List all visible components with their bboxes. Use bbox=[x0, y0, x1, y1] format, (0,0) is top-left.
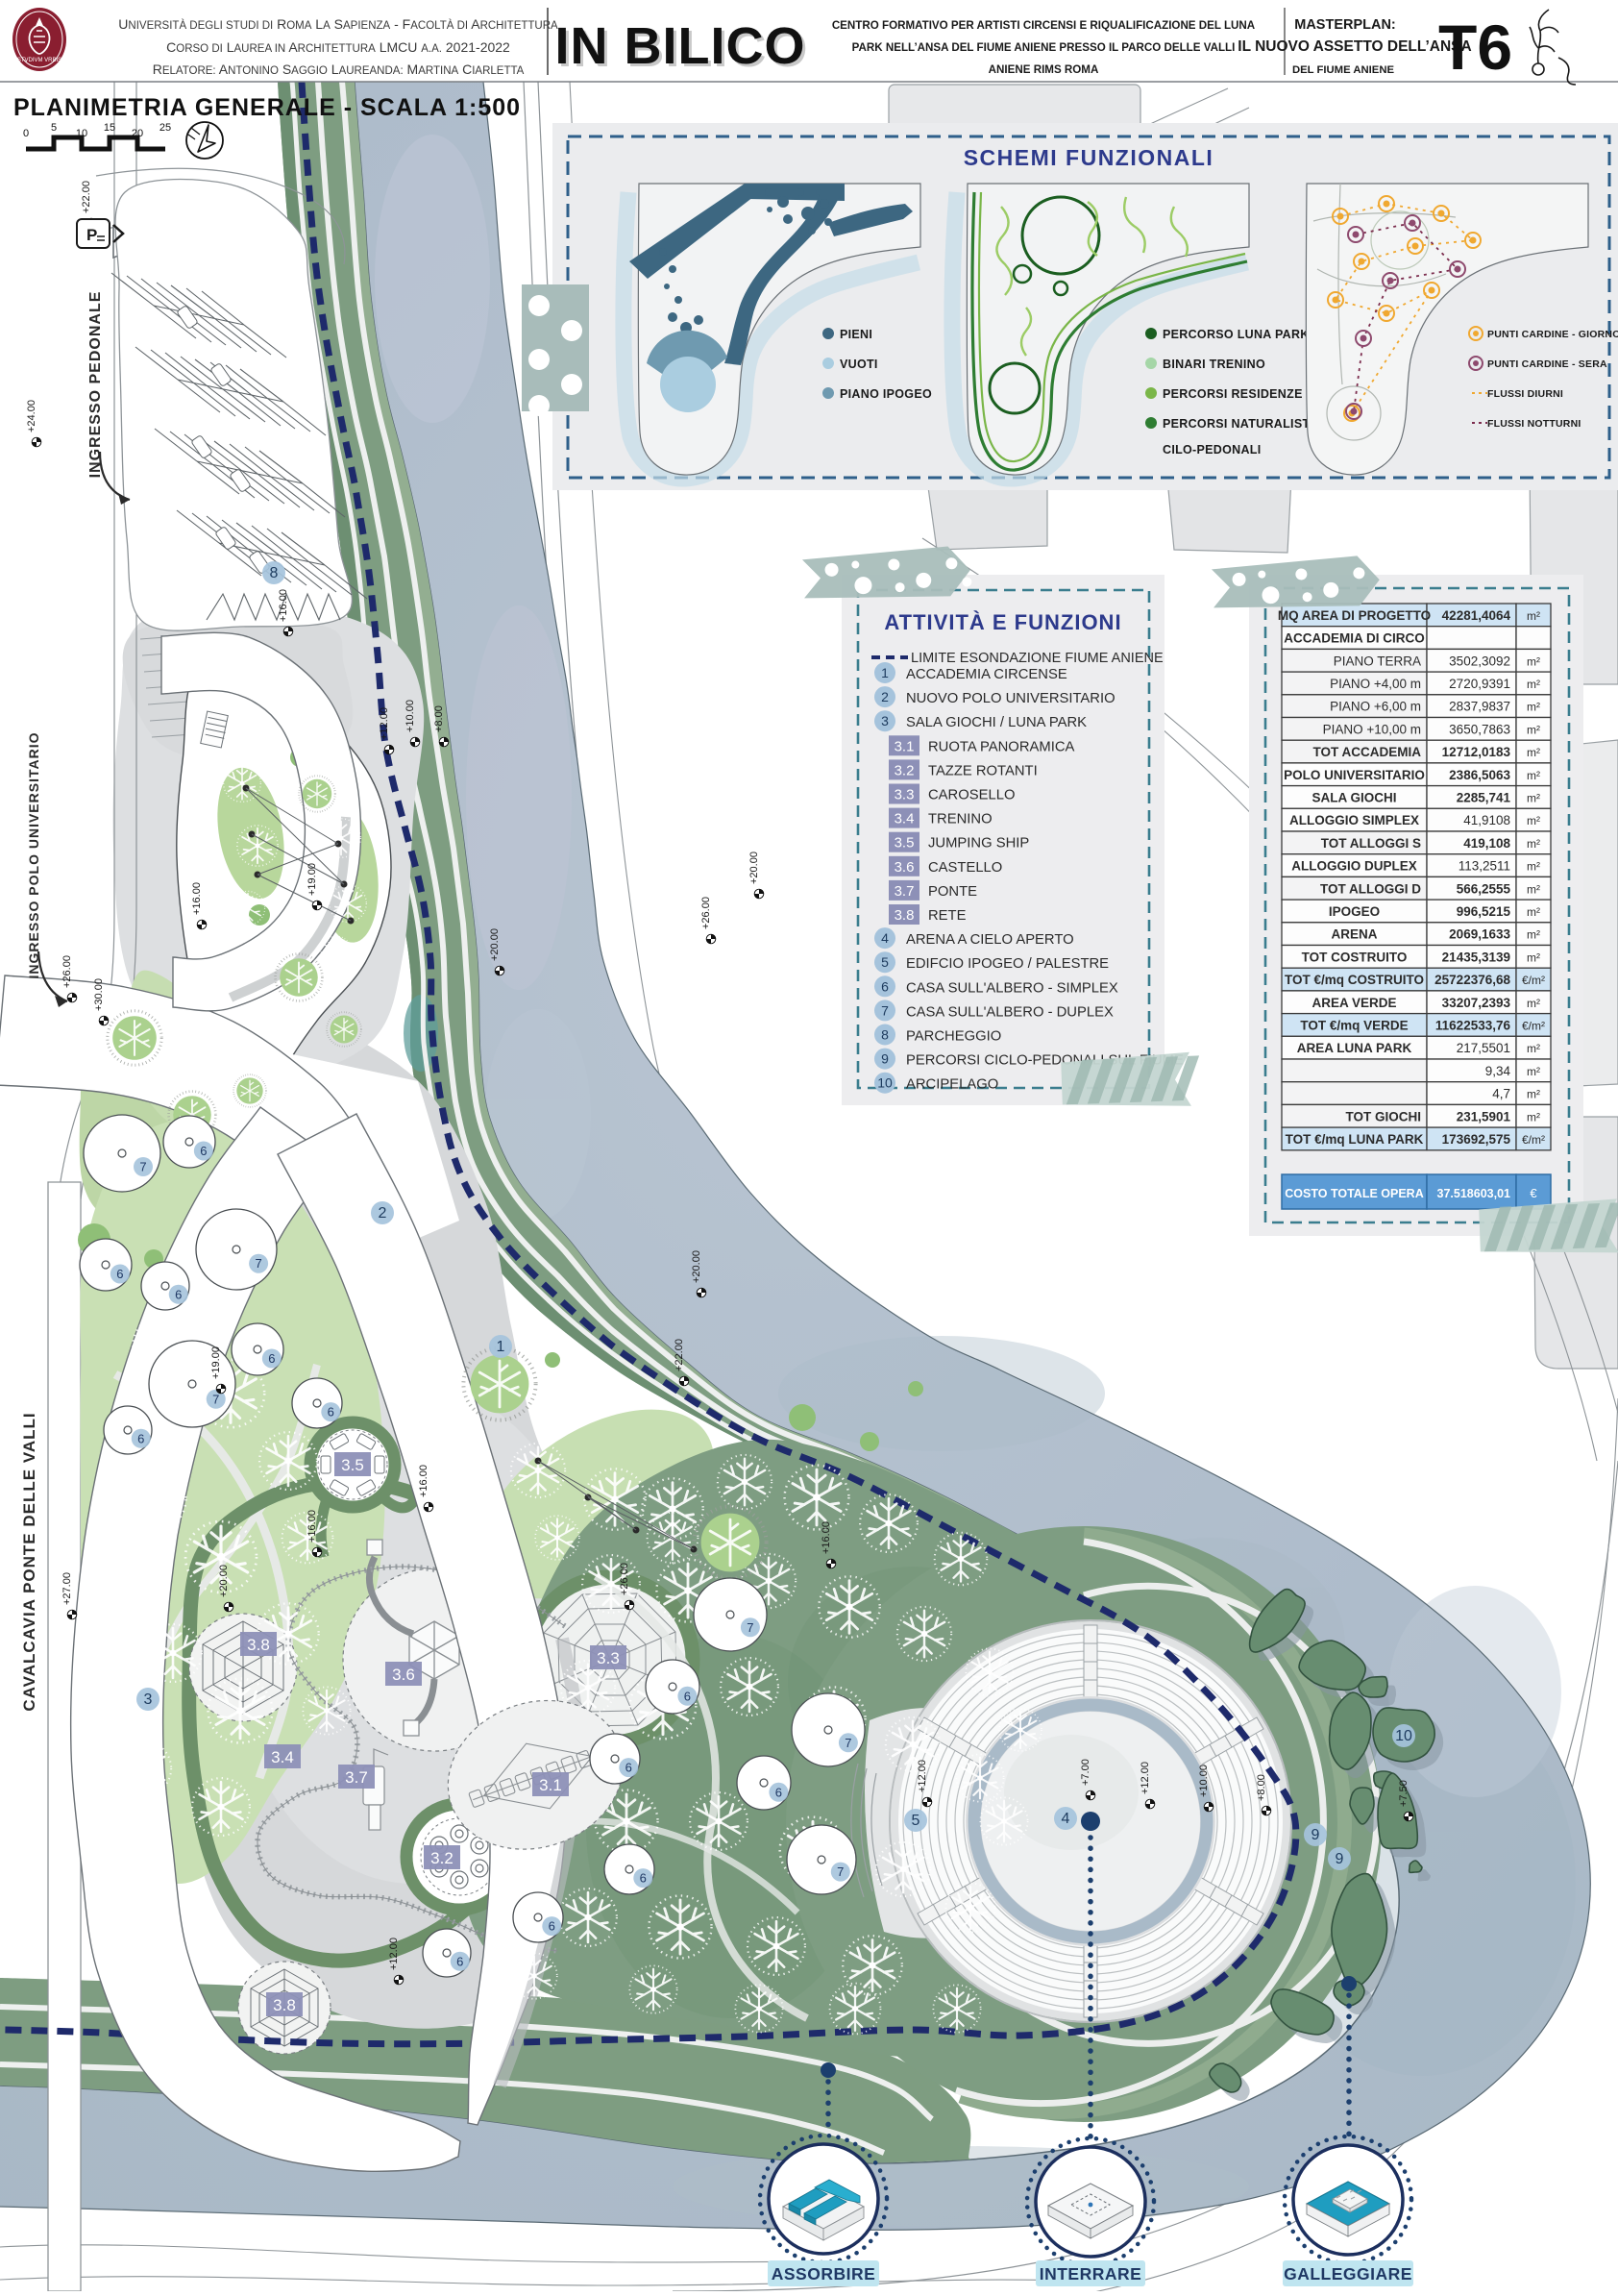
svg-text:+19.00: +19.00 bbox=[306, 863, 318, 896]
svg-text:PERCORSI RESIDENZE: PERCORSI RESIDENZE bbox=[1163, 387, 1303, 401]
svg-text:ALLOGGIO SIMPLEX: ALLOGGIO SIMPLEX bbox=[1289, 813, 1419, 827]
svg-text:5: 5 bbox=[912, 1813, 920, 1829]
svg-text:9: 9 bbox=[1336, 1851, 1344, 1867]
svg-text:6: 6 bbox=[775, 1785, 782, 1799]
svg-text:€/m²: €/m² bbox=[1522, 1020, 1545, 1033]
svg-text:RETE: RETE bbox=[928, 908, 967, 924]
svg-text:ACCADEMIA CIRCENSE: ACCADEMIA CIRCENSE bbox=[906, 667, 1067, 682]
svg-text:MASTERPLAN:: MASTERPLAN: bbox=[1294, 17, 1396, 33]
svg-text:NUOVO POLO UNIVERSITARIO: NUOVO POLO UNIVERSITARIO bbox=[906, 691, 1115, 706]
svg-text:CASA SULL'ALBERO - SIMPLEX: CASA SULL'ALBERO - SIMPLEX bbox=[906, 980, 1118, 996]
svg-text:4: 4 bbox=[881, 930, 889, 946]
svg-text:+7.50: +7.50 bbox=[1398, 1780, 1410, 1807]
svg-text:37.518603,01: 37.518603,01 bbox=[1437, 1187, 1511, 1200]
svg-text:3.7: 3.7 bbox=[895, 883, 915, 900]
svg-text:6: 6 bbox=[116, 1267, 123, 1281]
svg-text:+12.00: +12.00 bbox=[388, 1938, 400, 1970]
svg-text:7: 7 bbox=[881, 1002, 889, 1018]
svg-text:3.3: 3.3 bbox=[597, 1649, 620, 1667]
svg-text:3.8: 3.8 bbox=[895, 907, 915, 924]
svg-text:POLO UNIVERSITARIO: POLO UNIVERSITARIO bbox=[1284, 768, 1425, 782]
svg-text:12712,0183: 12712,0183 bbox=[1442, 745, 1511, 759]
svg-text:m²: m² bbox=[1527, 928, 1540, 942]
svg-text:PIANO +10,00 m: PIANO +10,00 m bbox=[1323, 722, 1421, 736]
svg-text:INTERRARE: INTERRARE bbox=[1040, 2264, 1142, 2284]
svg-text:STVDIVM VRBIS: STVDIVM VRBIS bbox=[17, 58, 61, 63]
svg-text:6: 6 bbox=[200, 1144, 207, 1158]
svg-text:PERCORSO LUNA PARK: PERCORSO LUNA PARK bbox=[1163, 328, 1310, 341]
svg-text:PARCHEGGIO: PARCHEGGIO bbox=[906, 1029, 1001, 1045]
svg-text:+30.00: +30.00 bbox=[93, 978, 105, 1011]
svg-text:ACCADEMIA DI CIRCO: ACCADEMIA DI CIRCO bbox=[1284, 631, 1425, 646]
svg-text:6: 6 bbox=[625, 1761, 632, 1775]
svg-text:m²: m² bbox=[1527, 950, 1540, 964]
svg-text:PARK NELL’ANSA DEL FIUME ANIEN: PARK NELL’ANSA DEL FIUME ANIENE PRESSO I… bbox=[852, 41, 1236, 54]
svg-text:SALA GIOCHI: SALA GIOCHI bbox=[1312, 791, 1396, 805]
svg-text:1: 1 bbox=[497, 1339, 505, 1355]
svg-text:+20.00: +20.00 bbox=[218, 1565, 230, 1597]
svg-text:VUOTI: VUOTI bbox=[840, 358, 878, 371]
svg-text:10: 10 bbox=[76, 128, 87, 139]
svg-text:PERCORSI NATURALISTICI: PERCORSI NATURALISTICI bbox=[1163, 417, 1326, 431]
svg-text:m²: m² bbox=[1527, 997, 1540, 1010]
svg-text:8: 8 bbox=[270, 565, 279, 581]
svg-text:9: 9 bbox=[1312, 1827, 1320, 1843]
svg-text:COSTO TOTALE OPERA: COSTO TOTALE OPERA bbox=[1285, 1187, 1423, 1200]
svg-text:+22.00: +22.00 bbox=[674, 1339, 685, 1371]
svg-text:m²: m² bbox=[1527, 1065, 1540, 1078]
svg-text:IN BILICO: IN BILICO bbox=[555, 17, 806, 75]
svg-text:2069,1633: 2069,1633 bbox=[1449, 927, 1510, 942]
svg-text:ARENA A CIELO APERTO: ARENA A CIELO APERTO bbox=[906, 932, 1074, 948]
svg-text:AREA LUNA PARK: AREA LUNA PARK bbox=[1297, 1041, 1412, 1055]
svg-text:RUOTA PANORAMICA: RUOTA PANORAMICA bbox=[928, 739, 1074, 754]
svg-text:PIANO +6,00 m: PIANO +6,00 m bbox=[1330, 700, 1421, 714]
svg-text:DEL FIUME ANIENE: DEL FIUME ANIENE bbox=[1292, 64, 1395, 76]
svg-text:15: 15 bbox=[104, 122, 115, 134]
svg-text:996,5215: 996,5215 bbox=[1457, 904, 1511, 919]
svg-text:3.8: 3.8 bbox=[273, 1996, 296, 2014]
svg-text:6: 6 bbox=[640, 1871, 647, 1886]
svg-text:IPOGEO: IPOGEO bbox=[1329, 904, 1380, 919]
svg-text:m²: m² bbox=[1527, 746, 1540, 759]
svg-text:7: 7 bbox=[837, 1864, 844, 1879]
svg-text:m²: m² bbox=[1527, 1110, 1540, 1123]
svg-text:3.3: 3.3 bbox=[895, 787, 915, 803]
svg-text:3.4: 3.4 bbox=[271, 1748, 294, 1766]
svg-text:3.7: 3.7 bbox=[345, 1768, 368, 1787]
svg-text:CAVALCAVIA PONTE DELLE VALLI: CAVALCAVIA PONTE DELLE VALLI bbox=[20, 1412, 38, 1711]
svg-text:PIANO IPOGEO: PIANO IPOGEO bbox=[840, 387, 932, 401]
svg-text:IL NUOVO ASSETTO DELL’ANSA: IL NUOVO ASSETTO DELL’ANSA bbox=[1238, 38, 1471, 55]
svg-text:+26.00: +26.00 bbox=[619, 1563, 630, 1595]
svg-text:+26.00: +26.00 bbox=[61, 955, 73, 988]
svg-text:3.4: 3.4 bbox=[895, 811, 915, 827]
svg-text:+16.00: +16.00 bbox=[191, 882, 203, 915]
svg-text:PUNTI CARDINE - SERA: PUNTI CARDINE - SERA bbox=[1487, 358, 1607, 370]
svg-text:2: 2 bbox=[881, 689, 889, 704]
svg-text:m²: m² bbox=[1527, 814, 1540, 827]
svg-text:6: 6 bbox=[268, 1351, 275, 1366]
svg-text:3: 3 bbox=[881, 713, 889, 728]
svg-text:4,7: 4,7 bbox=[1492, 1087, 1510, 1101]
svg-text:€/m²: €/m² bbox=[1522, 974, 1545, 987]
svg-text:m²: m² bbox=[1527, 792, 1540, 805]
svg-text:TOT ALLOGGI D: TOT ALLOGGI D bbox=[1320, 881, 1421, 896]
svg-text:3.5: 3.5 bbox=[341, 1456, 364, 1474]
svg-text:2285,741: 2285,741 bbox=[1457, 791, 1511, 805]
svg-text:3502,3092: 3502,3092 bbox=[1449, 654, 1510, 668]
svg-text:PLANIMETRIA GENERALE - SCALA 1: PLANIMETRIA GENERALE - SCALA 1:500 bbox=[13, 94, 521, 121]
svg-text:41,9108: 41,9108 bbox=[1463, 813, 1510, 827]
svg-text:+16.00: +16.00 bbox=[418, 1465, 429, 1497]
svg-text:7: 7 bbox=[845, 1736, 851, 1750]
svg-text:+16.00: +16.00 bbox=[821, 1521, 832, 1554]
svg-text:+20.00: +20.00 bbox=[691, 1250, 702, 1283]
svg-text:0: 0 bbox=[23, 128, 29, 139]
svg-text:m²: m² bbox=[1527, 609, 1540, 623]
svg-text:+8.00: +8.00 bbox=[433, 705, 445, 732]
svg-text:566,2555: 566,2555 bbox=[1457, 881, 1511, 896]
svg-text:25: 25 bbox=[159, 122, 171, 134]
svg-text:P: P bbox=[86, 226, 97, 244]
svg-text:TOT ALLOGGI S: TOT ALLOGGI S bbox=[1321, 836, 1421, 851]
svg-text:€: € bbox=[1530, 1186, 1537, 1200]
svg-text:CASTELLO: CASTELLO bbox=[928, 860, 1002, 876]
svg-text:+22.00: +22.00 bbox=[81, 181, 92, 213]
svg-text:3: 3 bbox=[144, 1691, 153, 1708]
svg-text:+19.00: +19.00 bbox=[210, 1346, 222, 1379]
svg-text:+27.00: +27.00 bbox=[61, 1572, 73, 1605]
svg-text:ALLOGGIO DUPLEX: ALLOGGIO DUPLEX bbox=[1291, 859, 1417, 874]
svg-text:3.2: 3.2 bbox=[895, 762, 915, 778]
svg-text:TOT GIOCHI: TOT GIOCHI bbox=[1345, 1109, 1421, 1123]
svg-text:9,34: 9,34 bbox=[1485, 1064, 1511, 1078]
svg-text:SALA GIOCHI / LUNA PARK: SALA GIOCHI / LUNA PARK bbox=[906, 715, 1087, 730]
svg-text:PIANO TERRA: PIANO TERRA bbox=[1334, 654, 1421, 668]
svg-text:11622533,76: 11622533,76 bbox=[1435, 1019, 1511, 1033]
svg-text:2837,9837: 2837,9837 bbox=[1449, 700, 1510, 714]
svg-text:INGRESSO POLO UNIVERSITARIO: INGRESSO POLO UNIVERSITARIO bbox=[26, 732, 41, 979]
svg-text:2386,5063: 2386,5063 bbox=[1449, 768, 1510, 782]
svg-text:AREA VERDE: AREA VERDE bbox=[1312, 996, 1396, 1010]
svg-text:SCHEMI FUNZIONALI: SCHEMI FUNZIONALI bbox=[964, 145, 1214, 170]
svg-text:33207,2393: 33207,2393 bbox=[1442, 996, 1511, 1010]
svg-text:GALLEGGIARE: GALLEGGIARE bbox=[1284, 2264, 1412, 2284]
svg-text:5: 5 bbox=[881, 954, 889, 970]
svg-text:20: 20 bbox=[132, 128, 143, 139]
svg-text:TOT €/mq LUNA PARK: TOT €/mq LUNA PARK bbox=[1286, 1132, 1424, 1147]
svg-text:4: 4 bbox=[1062, 1811, 1070, 1827]
svg-text:113,2511: 113,2511 bbox=[1459, 859, 1510, 874]
svg-text:6: 6 bbox=[549, 1919, 555, 1934]
svg-text:6: 6 bbox=[684, 1689, 691, 1703]
svg-text:+12.00: +12.00 bbox=[379, 707, 390, 740]
svg-text:+12.00: +12.00 bbox=[1140, 1762, 1151, 1794]
svg-text:PIENI: PIENI bbox=[840, 328, 872, 341]
svg-text:1: 1 bbox=[881, 665, 889, 680]
svg-text:7: 7 bbox=[255, 1256, 261, 1271]
svg-text:CENTRO FORMATIVO PER ARTISTI C: CENTRO FORMATIVO PER ARTISTI CIRCENSI E … bbox=[832, 19, 1256, 32]
svg-text:2720,9391: 2720,9391 bbox=[1449, 677, 1510, 691]
svg-text:3.1: 3.1 bbox=[895, 738, 915, 754]
svg-text:6: 6 bbox=[881, 978, 889, 994]
svg-text:PUNTI CARDINE - GIORNO: PUNTI CARDINE - GIORNO bbox=[1487, 329, 1618, 340]
svg-text:+10.00: +10.00 bbox=[404, 700, 416, 732]
svg-text:3650,7863: 3650,7863 bbox=[1449, 722, 1510, 736]
svg-text:m²: m² bbox=[1527, 654, 1540, 668]
svg-text:6: 6 bbox=[328, 1405, 334, 1420]
svg-text:+12.00: +12.00 bbox=[917, 1760, 928, 1792]
svg-text:TOT COSTRUITO: TOT COSTRUITO bbox=[1302, 950, 1408, 964]
svg-text:FLUSSI DIURNI: FLUSSI DIURNI bbox=[1487, 388, 1563, 400]
svg-text:TAZZE ROTANTI: TAZZE ROTANTI bbox=[928, 763, 1038, 778]
svg-text:CASA SULL'ALBERO - DUPLEX: CASA SULL'ALBERO - DUPLEX bbox=[906, 1004, 1114, 1020]
svg-text:3.5: 3.5 bbox=[895, 835, 915, 852]
svg-text:m²: m² bbox=[1527, 769, 1540, 782]
svg-text:PONTE: PONTE bbox=[928, 884, 977, 900]
svg-text:EDIFCIO IPOGEO / PALESTRE: EDIFCIO IPOGEO / PALESTRE bbox=[906, 956, 1109, 972]
svg-text:2: 2 bbox=[379, 1205, 387, 1222]
svg-text:PIANO +4,00 m: PIANO +4,00 m bbox=[1330, 677, 1421, 691]
svg-text:BINARI TRENINO: BINARI TRENINO bbox=[1163, 358, 1265, 371]
svg-text:25722376,68: 25722376,68 bbox=[1434, 973, 1510, 987]
svg-text:3.2: 3.2 bbox=[430, 1849, 454, 1867]
svg-text:+8.00: +8.00 bbox=[1256, 1774, 1267, 1801]
svg-text:m²: m² bbox=[1527, 882, 1540, 896]
svg-text:+10.00: +10.00 bbox=[1198, 1765, 1210, 1797]
svg-text:m²: m² bbox=[1527, 860, 1540, 874]
svg-text:€/m²: €/m² bbox=[1522, 1133, 1545, 1147]
svg-text:6: 6 bbox=[137, 1431, 144, 1445]
svg-text:T6: T6 bbox=[1438, 12, 1512, 83]
svg-text:6: 6 bbox=[456, 1954, 463, 1968]
svg-text:+24.00: +24.00 bbox=[26, 400, 37, 432]
svg-text:21435,3139: 21435,3139 bbox=[1442, 950, 1510, 964]
svg-text:7: 7 bbox=[139, 1160, 146, 1174]
svg-text:m²: m² bbox=[1527, 701, 1540, 714]
svg-text:INGRESSO PEDONALE: INGRESSO PEDONALE bbox=[87, 291, 104, 479]
svg-text:CILO-PEDONALI: CILO-PEDONALI bbox=[1163, 443, 1262, 457]
svg-text:10: 10 bbox=[1395, 1728, 1412, 1744]
svg-text:+16.00: +16.00 bbox=[306, 1510, 318, 1543]
svg-text:8: 8 bbox=[881, 1027, 889, 1043]
svg-text:CAROSELLO: CAROSELLO bbox=[928, 788, 1015, 803]
svg-text:5: 5 bbox=[51, 122, 57, 134]
svg-text:7: 7 bbox=[747, 1620, 753, 1635]
svg-text:MQ AREA DI PROGETTO: MQ AREA DI PROGETTO bbox=[1278, 608, 1431, 623]
svg-text:m²: m² bbox=[1527, 1088, 1540, 1101]
svg-text:3.6: 3.6 bbox=[895, 859, 915, 876]
svg-text:42281,4064: 42281,4064 bbox=[1442, 608, 1511, 623]
svg-text:TOT ACCADEMIA: TOT ACCADEMIA bbox=[1313, 745, 1422, 759]
svg-text:3.8: 3.8 bbox=[247, 1636, 270, 1654]
svg-text:+20.00: +20.00 bbox=[748, 852, 760, 884]
svg-text:7: 7 bbox=[212, 1392, 219, 1406]
svg-text:JUMPING SHIP: JUMPING SHIP bbox=[928, 836, 1029, 852]
svg-text:m²: m² bbox=[1527, 723, 1540, 736]
svg-text:+7.00: +7.00 bbox=[1080, 1759, 1091, 1786]
svg-text:+26.00: +26.00 bbox=[700, 897, 712, 929]
svg-text:ARENA: ARENA bbox=[1331, 927, 1377, 942]
svg-text:TOT €/mq VERDE: TOT €/mq VERDE bbox=[1300, 1019, 1408, 1033]
svg-text:FLUSSI NOTTURNI: FLUSSI NOTTURNI bbox=[1487, 418, 1581, 430]
svg-text:ARCIPELAGO: ARCIPELAGO bbox=[906, 1077, 998, 1093]
svg-text:LIMITE ESONDAZIONE FIUME ANIEN: LIMITE ESONDAZIONE FIUME ANIENE bbox=[911, 651, 1164, 666]
svg-text:m²: m² bbox=[1527, 905, 1540, 919]
svg-text:m²: m² bbox=[1527, 1042, 1540, 1055]
svg-text:173692,575: 173692,575 bbox=[1442, 1132, 1511, 1147]
svg-text:3.6: 3.6 bbox=[392, 1666, 415, 1684]
svg-text:9: 9 bbox=[881, 1051, 889, 1067]
svg-text:ATTIVITÀ E FUNZIONI: ATTIVITÀ E FUNZIONI bbox=[884, 610, 1121, 634]
svg-text:419,108: 419,108 bbox=[1463, 836, 1510, 851]
svg-text:+16.00: +16.00 bbox=[278, 589, 289, 622]
svg-text:ASSORBIRE: ASSORBIRE bbox=[772, 2264, 876, 2284]
svg-text:10: 10 bbox=[877, 1075, 893, 1091]
svg-text:ANIENE RIMS ROMA: ANIENE RIMS ROMA bbox=[989, 63, 1099, 76]
svg-text:+20.00: +20.00 bbox=[489, 928, 501, 961]
svg-text:6: 6 bbox=[175, 1287, 182, 1301]
svg-text:m²: m² bbox=[1527, 837, 1540, 851]
svg-text:TRENINO: TRENINO bbox=[928, 812, 993, 827]
svg-text:3.1: 3.1 bbox=[539, 1776, 562, 1794]
svg-text:217,5501: 217,5501 bbox=[1457, 1041, 1510, 1055]
svg-text:m²: m² bbox=[1527, 678, 1540, 691]
svg-text:231,5901: 231,5901 bbox=[1457, 1109, 1511, 1123]
svg-text:TOT €/mq COSTRUITO: TOT €/mq COSTRUITO bbox=[1285, 973, 1424, 987]
